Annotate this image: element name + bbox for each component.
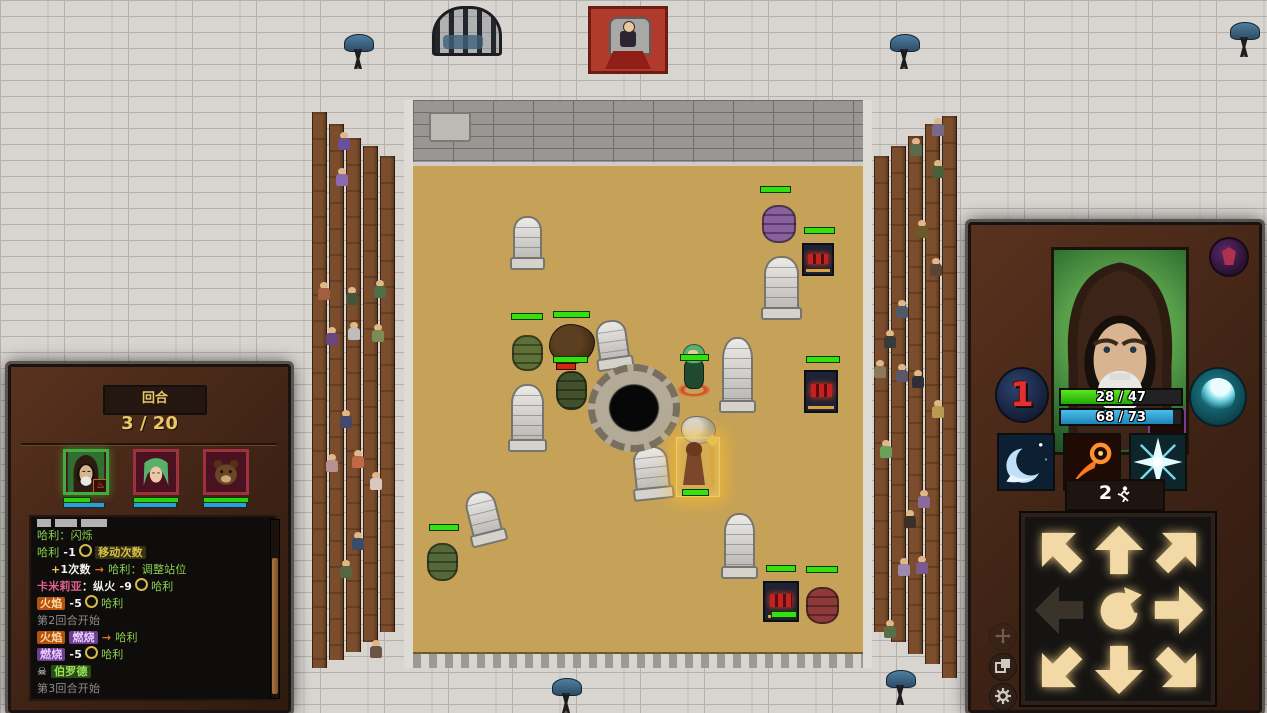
rotate-button[interactable] — [1091, 582, 1147, 638]
party-bars-harry — [63, 497, 109, 508]
arena-pit — [588, 364, 680, 452]
spectator — [318, 282, 330, 300]
spectator — [370, 640, 382, 658]
hero-robe — [683, 453, 705, 485]
log-entry: 燃烧 -5哈利 — [37, 646, 269, 663]
spectator — [340, 560, 352, 578]
barrel-purple[interactable] — [762, 205, 796, 243]
skull-icon: ☠ — [37, 665, 51, 678]
spectator — [326, 454, 338, 472]
move-arrow-sw[interactable] — [1031, 642, 1087, 698]
action-point-icon — [85, 595, 98, 608]
spectator-body — [874, 366, 886, 378]
spectator — [932, 400, 944, 418]
log-entry — [37, 519, 269, 527]
party-bars-bear — [203, 497, 249, 508]
hp-text: 28 / 47 — [1061, 390, 1181, 404]
faction-crest-icon — [1209, 237, 1249, 277]
bleacher-plank — [925, 124, 940, 664]
runner-icon — [1117, 486, 1131, 502]
elf-unit-camilia[interactable] — [679, 344, 709, 400]
unit-hp-bar — [553, 356, 588, 363]
action-point-icon — [135, 578, 148, 591]
royal-balcony — [588, 6, 668, 74]
spectator-body — [930, 264, 942, 276]
log-entry: 哈利 -1移动次数 — [37, 544, 269, 561]
arena-top-wall — [413, 100, 863, 166]
grill-legs — [347, 49, 369, 69]
move-arrow-nw[interactable] — [1031, 522, 1087, 578]
king-head — [623, 21, 635, 33]
spectator — [930, 258, 942, 276]
unit-hp-bar — [429, 524, 459, 531]
gear-button[interactable] — [989, 683, 1017, 711]
bleacher-plank — [380, 156, 395, 632]
barrel-red[interactable] — [806, 587, 839, 624]
unit-hp-bar — [806, 566, 838, 573]
grill-legs — [1233, 37, 1255, 57]
spectator-body — [340, 566, 352, 578]
burning-status-icon: ♨ — [93, 479, 108, 494]
spectator-body — [896, 306, 908, 318]
spectator — [916, 556, 928, 574]
king-figure — [620, 31, 636, 47]
spectator-body — [326, 333, 338, 345]
log-entry: 第2回合开始 — [37, 612, 269, 629]
bleacher-plank — [312, 112, 327, 668]
grill-legs — [893, 49, 915, 69]
log-entry: 火焰 -5哈利 — [37, 595, 269, 612]
game-screen: 回合 3 / 20 ♨ 哈利：闪烁哈利 -1移动次数+1次数 → 哈利：调整站位… — [0, 0, 1267, 713]
spectator — [370, 472, 382, 490]
grill-legs — [889, 685, 911, 705]
spectator-body — [352, 538, 364, 550]
gravestone[interactable] — [722, 337, 753, 409]
spectator-body — [932, 166, 944, 178]
log-entry: 火焰 燃烧 → 哈利 — [37, 629, 269, 646]
log-entry: 第3回合开始 — [37, 680, 269, 697]
spectator-body — [912, 376, 924, 388]
move-arrow-se[interactable] — [1151, 642, 1207, 698]
spectator — [374, 280, 386, 298]
barrel-green2[interactable] — [427, 543, 458, 581]
unit-hp-bar — [760, 186, 791, 193]
elf-body — [684, 361, 704, 389]
battle-info-panel: 回合 3 / 20 ♨ 哈利：闪烁哈利 -1移动次数+1次数 → 哈利：调整站位… — [8, 364, 291, 713]
spectator-body — [374, 286, 386, 298]
turn-label: 回合 — [103, 385, 207, 415]
spectator-body — [898, 564, 910, 576]
grill-stool — [890, 34, 918, 72]
spectator-body — [910, 144, 922, 156]
spectator — [932, 160, 944, 178]
gravestone[interactable] — [631, 444, 671, 497]
unit-hp-bar — [804, 227, 835, 234]
unit-hp-bar — [766, 565, 796, 572]
spectator — [884, 620, 896, 638]
spectator — [346, 287, 358, 305]
spectator — [880, 440, 892, 458]
ability-wave-button[interactable] — [997, 433, 1055, 491]
spectator — [874, 360, 886, 378]
bleacher-plank — [908, 136, 923, 654]
gravestone[interactable] — [513, 216, 542, 266]
spectator-body — [916, 562, 928, 574]
spectator-body — [336, 174, 348, 186]
hero-unit-harry-selected[interactable] — [676, 437, 720, 497]
spectator-body — [880, 446, 892, 458]
log-entry: 卡米莉亚：纵火 -9哈利 — [37, 578, 269, 595]
spectator-body — [318, 288, 330, 300]
party-bars-camilia — [133, 497, 179, 508]
spectator-body — [916, 226, 928, 238]
brazier[interactable] — [804, 370, 838, 413]
unit-hp-bar — [511, 313, 543, 320]
spectator — [896, 300, 908, 318]
move-cross-button[interactable] — [989, 623, 1017, 651]
spectator-body — [884, 626, 896, 638]
gravestone[interactable] — [724, 513, 755, 575]
bleachers-right — [874, 112, 960, 678]
hp-bar: 28 / 47 — [1059, 388, 1183, 406]
unit-hp-bar — [771, 611, 797, 618]
spectator-body — [348, 328, 360, 340]
unit-hp-bar — [682, 489, 709, 496]
spectator — [352, 450, 364, 468]
spectator-body — [338, 138, 350, 150]
water-swirl-icon[interactable] — [1189, 367, 1247, 427]
spectator — [904, 510, 916, 528]
move-arrow-ne[interactable] — [1151, 522, 1207, 578]
log-scrollbar[interactable] — [270, 519, 280, 699]
character-panel: 1 28 / 47 68 / 73 2 — [968, 222, 1262, 713]
movement-dpad — [1021, 513, 1215, 705]
bleachers-left — [312, 112, 398, 672]
grill-stool — [344, 34, 372, 72]
hero-hood — [686, 442, 702, 456]
party-portrait-camilia[interactable] — [133, 449, 179, 495]
spectator — [352, 532, 364, 550]
spectator — [916, 220, 928, 238]
spectator — [336, 168, 348, 186]
unit-hp-bar — [680, 354, 709, 361]
mp-text: 68 / 73 — [1061, 410, 1181, 424]
bleacher-plank — [942, 116, 957, 678]
gravestone[interactable] — [511, 384, 544, 448]
spectator — [348, 322, 360, 340]
gravestone[interactable] — [764, 256, 799, 316]
log-entry: ☠ 伯罗德 — [37, 663, 269, 680]
grill-stool — [552, 678, 580, 713]
layers-button[interactable] — [989, 653, 1017, 681]
turn-order-orb: 1 — [995, 367, 1049, 423]
log-scroll-thumb[interactable] — [272, 558, 278, 694]
move-points: 2 — [1065, 479, 1165, 511]
bleacher-plank — [363, 146, 378, 642]
bleacher-plank — [329, 124, 344, 660]
barrel-darkgreen[interactable] — [556, 371, 587, 410]
arena-bottom-border — [413, 652, 863, 668]
spectator-body — [884, 336, 896, 348]
spectator-body — [326, 460, 338, 472]
bleacher-plank — [874, 156, 889, 632]
unit-hp-bar — [553, 311, 590, 318]
unit-hp-bar — [806, 356, 840, 363]
spectator — [910, 138, 922, 156]
spectator — [898, 558, 910, 576]
spectator-body — [370, 646, 382, 658]
grill-legs — [555, 693, 577, 713]
unit-damage-bar — [556, 363, 576, 370]
mp-bar: 68 / 73 — [1059, 408, 1183, 426]
grill-stool — [1230, 22, 1258, 60]
spectator — [326, 327, 338, 345]
spectator — [340, 410, 352, 428]
spectator — [918, 490, 930, 508]
log-entry: +1次数 → 哈利：调整站位 — [37, 561, 269, 578]
divider — [21, 443, 277, 445]
spectator — [884, 330, 896, 348]
combat-log: 哈利：闪烁哈利 -1移动次数+1次数 → 哈利：调整站位卡米莉亚：纵火 -9哈利… — [29, 515, 277, 701]
log-entry: 哈利：闪烁 — [37, 527, 269, 544]
spectator — [372, 324, 384, 342]
spectator-body — [372, 330, 384, 342]
spectator-body — [918, 496, 930, 508]
spectator-body — [370, 478, 382, 490]
spectator-body — [932, 406, 944, 418]
action-point-icon — [85, 646, 98, 659]
hero-staff — [711, 440, 714, 486]
turn-counter: 3 / 20 — [11, 413, 288, 434]
action-point-icon — [79, 544, 92, 557]
spectator — [912, 370, 924, 388]
spectator-body — [346, 293, 358, 305]
spectator-body — [904, 516, 916, 528]
spectator-body — [932, 124, 944, 136]
barrel-green[interactable] — [512, 335, 543, 371]
spectator — [932, 118, 944, 136]
party-portrait-bear[interactable] — [203, 449, 249, 495]
spectator — [896, 364, 908, 382]
spectator-body — [896, 370, 908, 382]
brazier[interactable] — [802, 243, 834, 276]
spectator-body — [340, 416, 352, 428]
spectator — [338, 132, 350, 150]
grill-stool — [886, 670, 914, 708]
party-portrait-harry[interactable]: ♨ — [63, 449, 109, 495]
spectator-cage — [432, 6, 502, 56]
wall-hatch — [429, 112, 471, 142]
spectator-body — [352, 456, 364, 468]
